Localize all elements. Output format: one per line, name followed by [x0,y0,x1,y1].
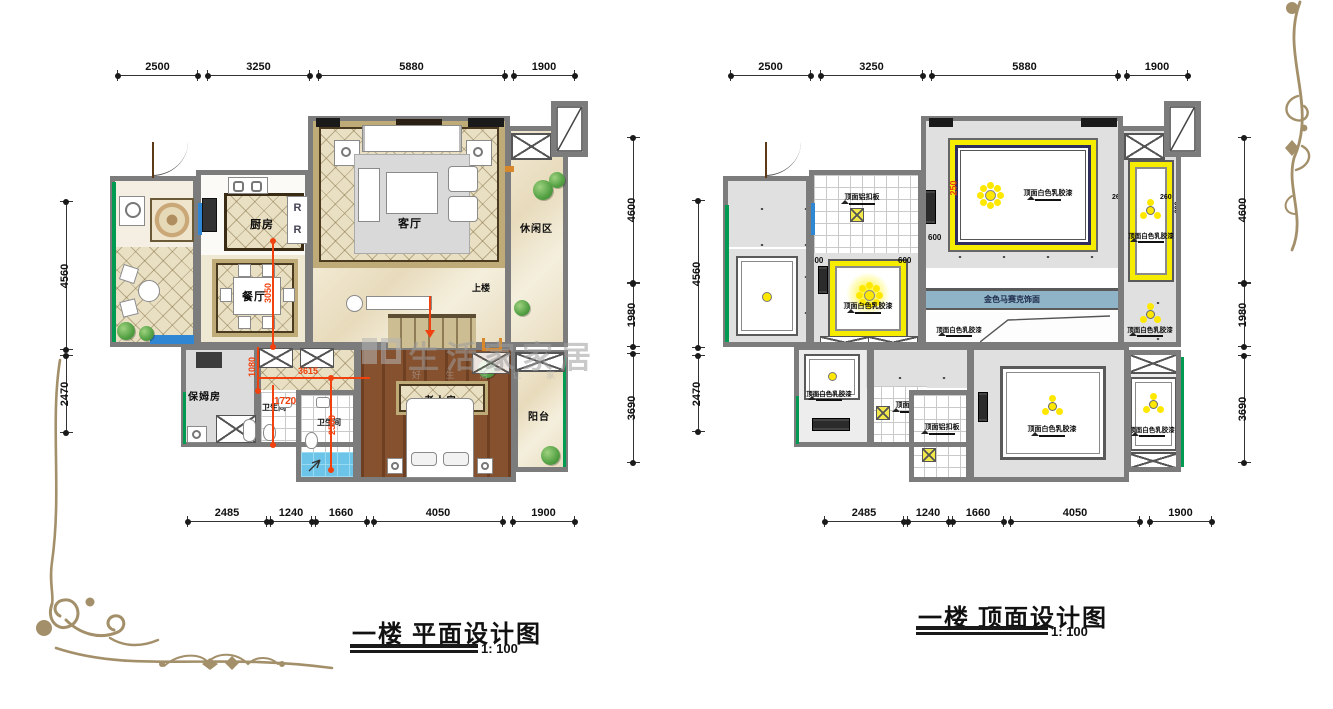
hall-xbox [259,348,293,368]
nightstand [477,458,493,474]
bay-window-glyph [1169,106,1196,152]
red-line [257,347,259,391]
green-edge [1181,357,1184,467]
bay-window-glyph [556,106,583,152]
nanny-walls [794,345,872,447]
dim-right-0: 4600 [625,137,642,283]
dim-bottom-2: 1660 [952,508,1004,525]
coffee-table [386,172,438,214]
green-edge [112,182,116,342]
plant-icon [541,446,560,465]
dim-top-2: 5880 [931,62,1118,79]
sofa-main [362,125,462,152]
red-line [272,385,274,445]
washer-icon [187,426,207,443]
room-label-nanny: 保姆房 [188,388,221,403]
red-dim-1720: 1720 [274,396,296,407]
dim-right-1: 1980 [1236,283,1253,347]
window-box [511,133,552,160]
basin-icon [316,397,330,408]
tv-console [366,296,432,310]
chaise [358,168,380,222]
entry-door-arc [765,142,801,176]
dim-right-2: 3690 [625,353,642,463]
dining-chair [238,316,251,329]
garden-pool [150,335,194,344]
media-player [346,295,363,312]
dim-top-0: 2500 [117,62,198,79]
pillow [443,452,469,466]
bed [406,398,474,478]
stair-arrow-line [429,296,431,330]
pillow [411,452,437,466]
entry-door-leaf [765,142,767,178]
red-dot [270,344,276,350]
washer-icon [119,196,145,226]
door-jamb [505,166,514,172]
title-rule [350,644,478,648]
dim-left-0: 4560 [58,201,75,350]
kitchen-dining-walls [809,170,923,347]
dim-bottom-0: 2485 [824,508,904,525]
dim-left-1: 2470 [690,355,707,432]
ceiling-plan-scale: 1: 100 [1051,624,1088,639]
fridge-icon: RR [287,196,308,244]
dim-top-3: 1900 [1126,62,1188,79]
tub-icon [243,419,256,442]
dim-top-0: 2500 [730,62,811,79]
red-dot [255,388,261,394]
title-rule [350,650,478,653]
dim-bottom-4: 1900 [1149,508,1212,525]
red-dot [328,467,334,473]
dim-bottom-1: 1240 [907,508,949,525]
dim-top-1: 3250 [207,62,310,79]
brand-logo-icon [362,338,377,364]
wall-accent [1081,118,1117,127]
dim-left-0: 4560 [690,200,707,348]
red-dim-2500: 2500 [327,415,337,435]
red-dot [328,375,334,381]
red-dim-1080: 1080 [247,357,257,377]
entry-walls [723,176,811,347]
entry-door-leaf [152,142,154,178]
hall-xbox [300,348,334,368]
green-edge [183,392,186,444]
room-label-leisure: 休闲区 [520,220,553,235]
dim-top-2: 5880 [318,62,505,79]
dim-bottom-2: 1660 [315,508,367,525]
floor-plan-scale: 1: 100 [481,641,518,656]
dim-top-3: 1900 [513,62,575,79]
balcony-walls [1126,350,1181,472]
shower-head-icon [306,456,324,474]
dining-chair [220,288,232,302]
wall-blue-strip [811,203,815,235]
plant-icon [514,300,530,316]
dim-left-1: 2470 [58,355,75,433]
dim-right-0: 4600 [1236,137,1253,283]
dim-right-1: 1980 [625,283,642,347]
room-label-kitchen: 厨房 [250,216,274,232]
dim-bottom-0: 2485 [187,508,267,525]
dim-bottom-4: 1900 [512,508,575,525]
plant-icon [139,326,154,341]
entry-door-arc [152,142,188,176]
corner-flourish-top-right [1262,0,1333,254]
dim-bottom-3: 4050 [1010,508,1140,525]
design-sheet: 2500 3250 5880 1900 2485 1240 1660 4050 … [0,0,1333,709]
plant-icon [117,322,135,340]
armchair [448,166,478,192]
toilet-icon [263,424,276,441]
toilet-icon [305,432,318,449]
nanny-pillow [196,352,222,368]
wall-accent [929,118,953,127]
dim-bottom-3: 4050 [373,508,503,525]
garden-table [138,280,160,302]
red-dim-3050: 3050 [263,283,273,303]
dim-bottom-1: 1240 [270,508,312,525]
wall-accent [316,118,340,127]
nightstand [387,458,403,474]
green-edge [796,396,799,444]
red-dot [270,442,276,448]
medallion-tile [150,198,194,242]
dining-chair [283,288,295,302]
red-dot [270,238,276,244]
green-edge [725,205,729,342]
bath2-walls [909,390,971,482]
title-rule [916,632,1048,635]
room-label-living: 客厅 [398,215,422,231]
stove-icon [202,198,217,232]
armchair [448,196,478,222]
elder-walls [969,345,1129,482]
red-line [258,377,370,379]
dining-chair [238,264,251,277]
stairs-label: 上楼 [472,281,490,294]
window-box [1124,133,1165,160]
plant-icon [549,172,565,188]
living-walls [921,116,1123,347]
dim-right-2: 3690 [1236,355,1253,463]
kitchen-sink [228,177,268,194]
brand-watermark-slogan: 好 生 活 让 家 [412,368,566,381]
dim-top-1: 3250 [820,62,923,79]
red-dim-3615: 3615 [298,366,318,376]
wall-accent [468,118,504,127]
room-label-balcony: 阳台 [528,408,550,423]
brand-logo-icon [381,338,401,364]
title-rule [916,626,1048,630]
